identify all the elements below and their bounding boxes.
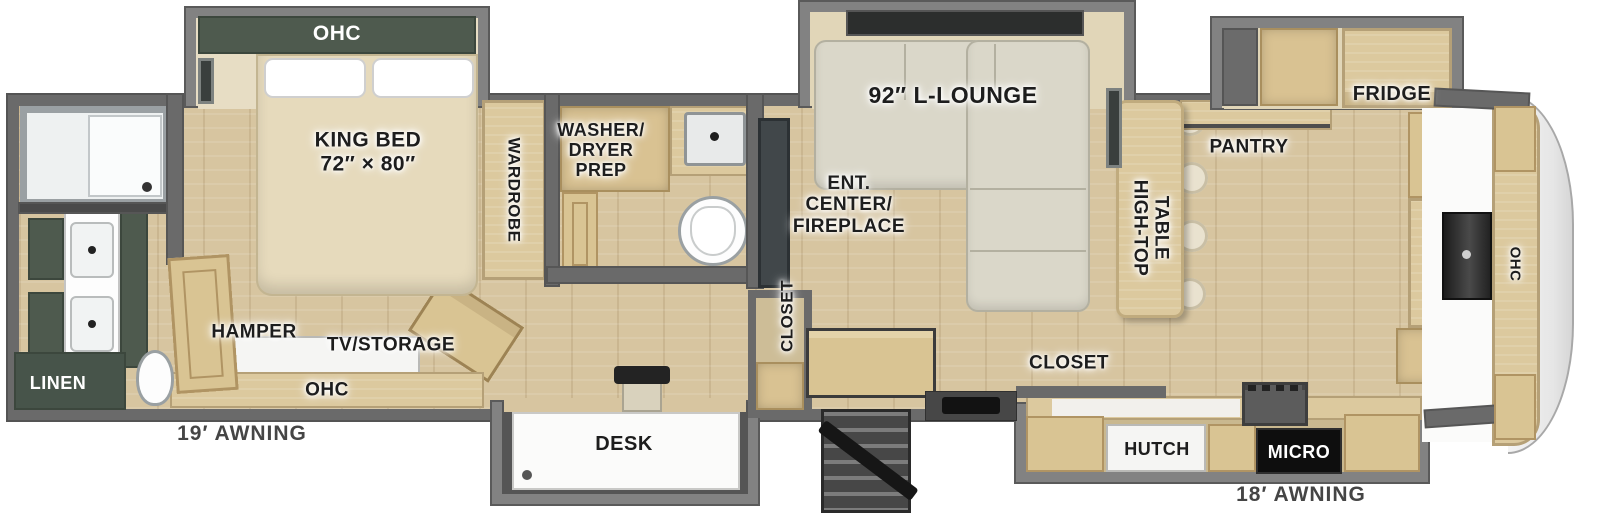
front-tv-button <box>1462 250 1471 259</box>
desk-chair-back <box>614 366 670 384</box>
desk-chair-seat <box>622 382 662 412</box>
washer-dryer-line1: WASHER/ <box>557 120 645 140</box>
kitchen-slide-mid-cabinet <box>1208 424 1256 472</box>
fridge-slide-gray-cab <box>1222 28 1258 106</box>
ent-center-line3: FIREPLACE <box>793 216 905 237</box>
front-cap-ohc-label: OHC <box>1506 247 1523 282</box>
rear-awning-label: 19′ AWNING <box>177 422 307 446</box>
faucet-2 <box>88 320 96 328</box>
washer-dryer-line2: DRYER <box>557 140 645 160</box>
ent-center-fireplace-unit <box>758 118 790 288</box>
bedroom-ohc-label: OHC <box>305 379 349 400</box>
bath-bedroom-wall <box>168 95 182 263</box>
fridge-slide-cabinet <box>1260 28 1338 106</box>
mid-toilet-seat <box>690 206 736 256</box>
bedroom-hall-wall <box>546 95 558 285</box>
pillow-right <box>372 58 474 98</box>
lounge-side-window <box>1106 88 1122 168</box>
front-closet-label: CLOSET <box>1029 352 1109 373</box>
bed-slide-ohc-label: OHC <box>313 22 361 46</box>
pillow-left <box>264 58 366 98</box>
fridge-label: FRIDGE <box>1353 83 1432 105</box>
kitchen-slide-right-cabinet <box>1344 414 1420 472</box>
kitchen-counter-white <box>1052 399 1240 417</box>
king-bed-label-line2: 72″ × 80″ <box>315 152 422 176</box>
front-awning-label: 18′ AWNING <box>1236 483 1366 507</box>
linen-label: LINEN <box>30 373 87 393</box>
bath-shower-divider <box>20 204 170 212</box>
entry-dresser <box>806 328 936 398</box>
high-top-line1: HIGH-TOP <box>1129 180 1150 277</box>
sofa-chaise-divider-2 <box>970 250 1086 252</box>
hutch-label: HUTCH <box>1124 439 1190 459</box>
mid-bath-door <box>562 192 598 276</box>
front-ohc-upper-cab <box>1494 106 1536 172</box>
mid-closet-cabinet <box>756 362 804 410</box>
high-top-table-label: HIGH-TOP TABLE <box>1129 180 1172 277</box>
l-lounge-label: 92″ L-LOUNGE <box>868 83 1037 109</box>
mid-closet-label: CLOSET <box>777 280 796 352</box>
front-closet-area <box>1016 386 1166 398</box>
sofa-chaise-section <box>966 40 1090 312</box>
micro-label: MICRO <box>1268 442 1331 462</box>
mid-bath-faucet <box>710 132 719 141</box>
ent-center-line1: ENT. <box>793 173 905 194</box>
washer-dryer-line3: PREP <box>557 160 645 180</box>
bath-tall-cabinet <box>120 210 148 368</box>
stove-burner-strip <box>1248 385 1302 391</box>
hamper-label: HAMPER <box>211 321 296 342</box>
wardrobe-label: WARDROBE <box>504 137 523 242</box>
bedroom-slide-window-left <box>198 58 214 104</box>
shower-drain <box>142 182 152 192</box>
pantry-label: PANTRY <box>1210 136 1289 157</box>
high-top-line2: TABLE <box>1150 180 1171 277</box>
faucet-1 <box>88 246 96 254</box>
lounge-window-band <box>846 10 1084 36</box>
ent-center-label: ENT. CENTER/ FIREPLACE <box>793 173 905 237</box>
desk-grommet <box>522 470 532 480</box>
desk-label: DESK <box>595 433 653 455</box>
king-bed-label: KING BED 72″ × 80″ <box>315 128 422 175</box>
entry-counter-sink <box>942 397 1000 414</box>
floorplan-diagram: OHC KING BED 72″ × 80″ WARDROBE WASHER/ … <box>0 0 1600 513</box>
rear-toilet <box>136 350 174 406</box>
ent-center-line2: CENTER/ <box>793 194 905 215</box>
vanity-mirror-upper <box>28 218 64 280</box>
vanity-mirror-lower <box>28 292 64 354</box>
king-bed-label-line1: KING BED <box>315 128 422 152</box>
tv-storage-label: TV/STORAGE <box>327 334 455 355</box>
sofa-chaise-divider-1 <box>970 188 1086 190</box>
mid-bath-bottom-wall <box>548 268 760 282</box>
washer-dryer-label: WASHER/ DRYER PREP <box>557 120 645 180</box>
front-ohc-lower-cab <box>1494 374 1536 440</box>
kitchen-slide-left-cabinet <box>1026 416 1104 472</box>
